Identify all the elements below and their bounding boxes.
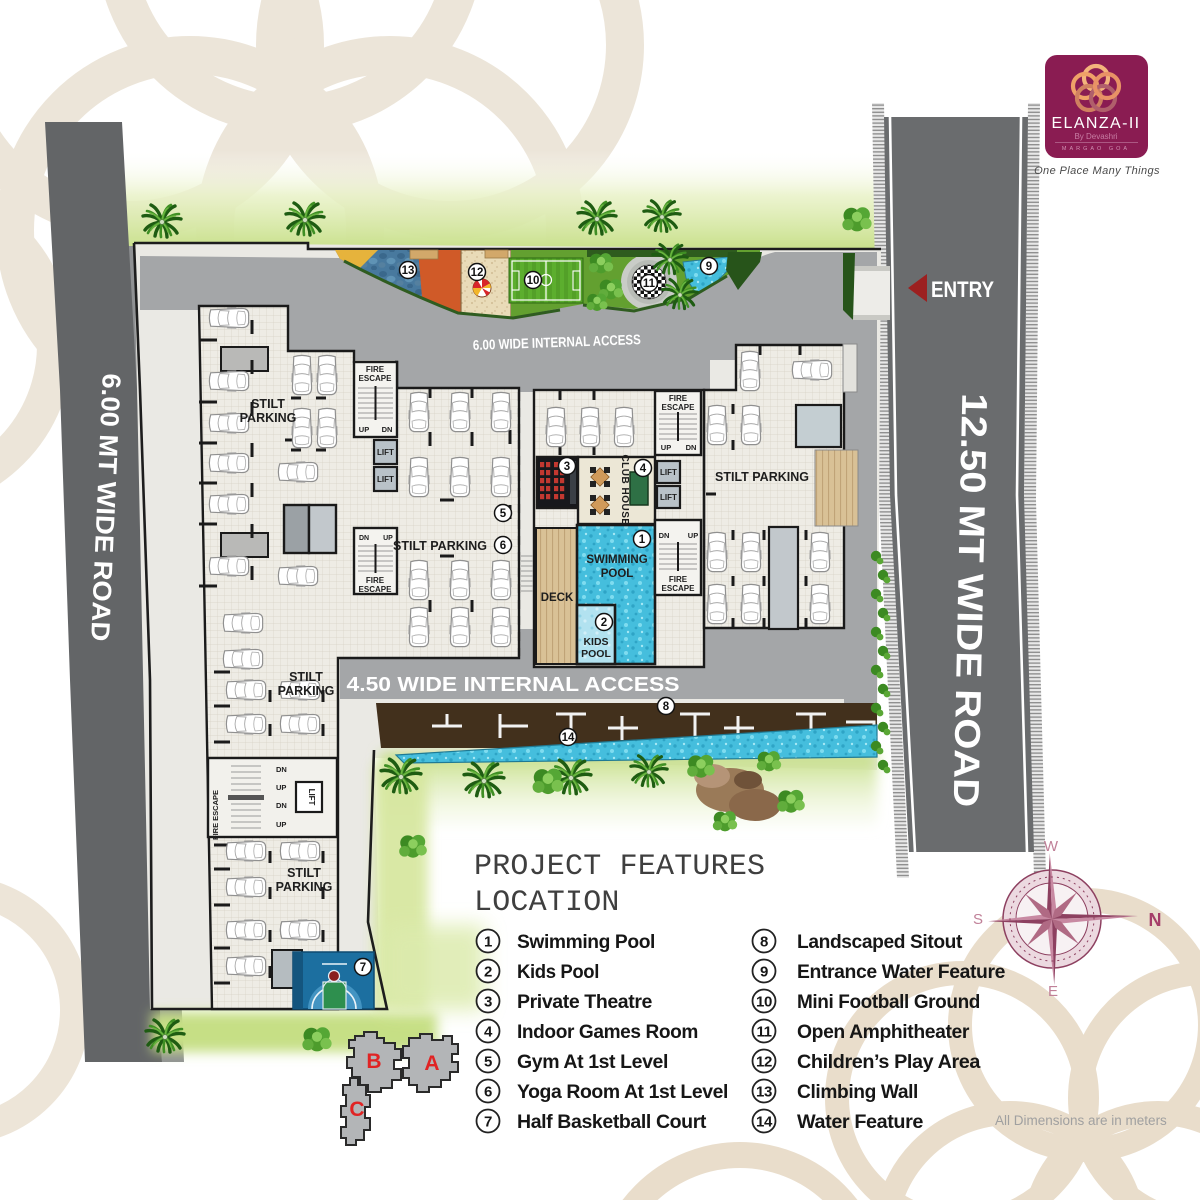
svg-text:Gym At 1st Level: Gym At 1st Level (517, 1051, 668, 1073)
svg-text:LIFT: LIFT (660, 493, 677, 502)
svg-text:POOL: POOL (581, 648, 611, 660)
svg-text:A: A (424, 1052, 439, 1075)
svg-text:Open Amphitheater: Open Amphitheater (797, 1021, 970, 1043)
svg-text:1: 1 (484, 934, 492, 951)
svg-text:ESCAPE: ESCAPE (359, 374, 393, 383)
svg-text:Children’s Play Area: Children’s Play Area (797, 1051, 981, 1073)
svg-text:LIFT: LIFT (377, 448, 394, 457)
svg-text:DN: DN (659, 531, 670, 540)
svg-text:Kids Pool: Kids Pool (517, 961, 599, 983)
svg-text:UP: UP (359, 425, 369, 434)
svg-text:One Place Many Things: One Place Many Things (1034, 165, 1160, 177)
svg-text:KIDS: KIDS (583, 636, 608, 648)
svg-text:PROJECT FEATURES: PROJECT FEATURES (474, 850, 765, 884)
svg-text:STILT PARKING: STILT PARKING (715, 470, 809, 484)
svg-text:MARGAO GOA: MARGAO GOA (1062, 146, 1130, 152)
svg-text:9: 9 (760, 964, 768, 981)
svg-text:DN: DN (686, 443, 697, 452)
svg-text:3: 3 (564, 461, 570, 473)
svg-text:UP: UP (276, 783, 286, 792)
svg-text:ESCAPE: ESCAPE (662, 584, 696, 593)
svg-text:ESCAPE: ESCAPE (359, 585, 393, 594)
svg-text:STILT PARKING: STILT PARKING (393, 539, 487, 553)
svg-text:12: 12 (756, 1054, 772, 1071)
svg-text:13: 13 (402, 265, 415, 277)
svg-text:8: 8 (760, 934, 768, 951)
svg-text:Indoor Games Room: Indoor Games Room (517, 1021, 698, 1043)
svg-text:PARKING: PARKING (278, 684, 335, 698)
svg-text:ENTRY: ENTRY (931, 277, 994, 302)
svg-text:14: 14 (756, 1114, 773, 1131)
svg-text:SWIMMING: SWIMMING (586, 554, 647, 566)
svg-text:W: W (1044, 838, 1059, 855)
svg-text:6: 6 (484, 1084, 492, 1101)
svg-text:4: 4 (484, 1024, 493, 1041)
svg-text:DECK: DECK (541, 592, 574, 604)
svg-text:ELANZA-II: ELANZA-II (1051, 115, 1140, 132)
svg-text:9: 9 (706, 261, 712, 273)
svg-text:STILT: STILT (289, 670, 323, 684)
svg-text:Private Theatre: Private Theatre (517, 991, 653, 1013)
svg-text:5: 5 (484, 1054, 492, 1071)
svg-text:LOCATION: LOCATION (474, 886, 620, 920)
svg-text:FIRE: FIRE (669, 575, 688, 584)
svg-text:DN: DN (359, 535, 369, 542)
svg-text:LIFT: LIFT (307, 789, 316, 806)
svg-text:CLUB HOUSE: CLUB HOUSE (619, 454, 630, 525)
svg-text:ESCAPE: ESCAPE (662, 403, 696, 412)
svg-text:3: 3 (484, 994, 492, 1011)
svg-text:PARKING: PARKING (276, 880, 333, 894)
svg-text:C: C (349, 1098, 364, 1121)
svg-text:11: 11 (756, 1024, 771, 1041)
svg-text:13: 13 (756, 1084, 772, 1101)
svg-text:Entrance Water Feature: Entrance Water Feature (797, 961, 1006, 983)
svg-text:6: 6 (500, 540, 506, 552)
svg-text:1: 1 (639, 534, 646, 546)
svg-text:12: 12 (471, 267, 484, 279)
svg-text:10: 10 (527, 275, 540, 287)
svg-text:LIFT: LIFT (377, 475, 394, 484)
svg-text:4: 4 (640, 463, 647, 475)
svg-text:S: S (973, 911, 983, 928)
svg-text:14: 14 (562, 732, 575, 744)
svg-text:DN: DN (276, 765, 287, 774)
svg-text:10: 10 (756, 994, 772, 1011)
svg-text:By Devashri: By Devashri (1074, 132, 1117, 141)
svg-text:7: 7 (360, 962, 366, 974)
svg-text:PARKING: PARKING (240, 411, 297, 425)
svg-text:5: 5 (500, 508, 507, 520)
svg-text:DN: DN (382, 425, 393, 434)
svg-text:POOL: POOL (601, 568, 634, 580)
svg-text:4.50 WIDE INTERNAL ACCESS: 4.50 WIDE INTERNAL ACCESS (347, 673, 680, 696)
svg-text:UP: UP (661, 443, 671, 452)
svg-text:UP: UP (383, 535, 393, 542)
svg-text:UP: UP (688, 531, 698, 540)
svg-text:STILT: STILT (287, 866, 321, 880)
svg-text:12.50 MT WIDE ROAD: 12.50 MT WIDE ROAD (946, 393, 996, 808)
svg-text:UP: UP (276, 820, 286, 829)
svg-text:FIRE: FIRE (669, 394, 688, 403)
svg-text:FIRE ESCAPE: FIRE ESCAPE (211, 790, 220, 840)
svg-text:STILT: STILT (251, 397, 285, 411)
svg-text:Landscaped Sitout: Landscaped Sitout (797, 931, 963, 953)
svg-text:2: 2 (484, 964, 492, 981)
svg-text:All Dimensions are in meters: All Dimensions are in meters (995, 1113, 1167, 1128)
svg-text:Climbing Wall: Climbing Wall (797, 1081, 918, 1103)
svg-text:2: 2 (601, 617, 607, 629)
svg-text:E: E (1048, 983, 1058, 1000)
svg-text:FIRE: FIRE (366, 576, 385, 585)
svg-text:DN: DN (276, 801, 287, 810)
svg-text:Swimming Pool: Swimming Pool (517, 931, 655, 953)
svg-text:8: 8 (663, 701, 670, 713)
svg-text:N: N (1149, 910, 1162, 930)
svg-text:Water Feature: Water Feature (797, 1111, 924, 1133)
svg-text:LIFT: LIFT (660, 468, 677, 477)
svg-text:Mini Football Ground: Mini Football Ground (797, 991, 980, 1013)
svg-text:B: B (366, 1050, 381, 1073)
svg-text:Half Basketball Court: Half Basketball Court (517, 1111, 707, 1133)
svg-text:Yoga Room At 1st Level: Yoga Room At 1st Level (517, 1081, 728, 1103)
svg-text:FIRE: FIRE (366, 365, 385, 374)
svg-text:11: 11 (643, 278, 656, 290)
svg-text:7: 7 (484, 1114, 492, 1131)
